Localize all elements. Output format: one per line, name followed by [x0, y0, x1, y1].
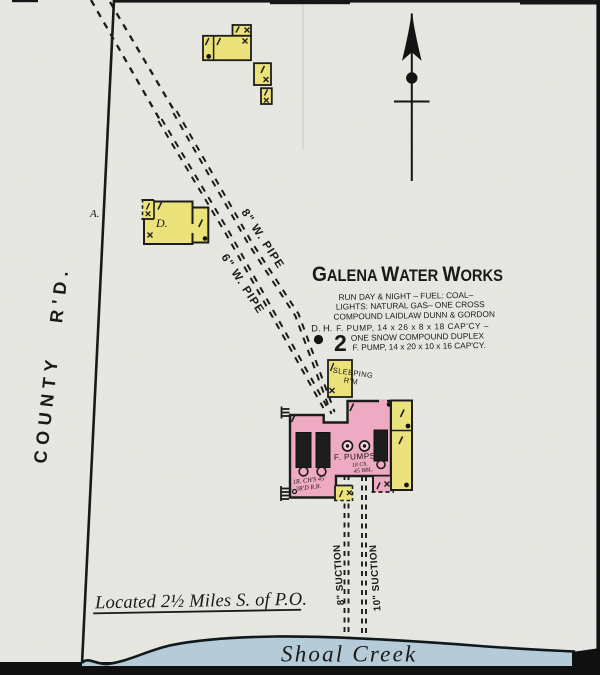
- svg-text:Shoal Creek: Shoal Creek: [281, 642, 417, 667]
- svg-text:A.: A.: [89, 208, 99, 220]
- svg-text:2: 2: [334, 330, 347, 356]
- svg-text:D.: D.: [155, 216, 168, 230]
- svg-text:D. H.: D. H.: [311, 323, 332, 333]
- svg-text:F. PUMPS.: F. PUMPS.: [334, 451, 379, 462]
